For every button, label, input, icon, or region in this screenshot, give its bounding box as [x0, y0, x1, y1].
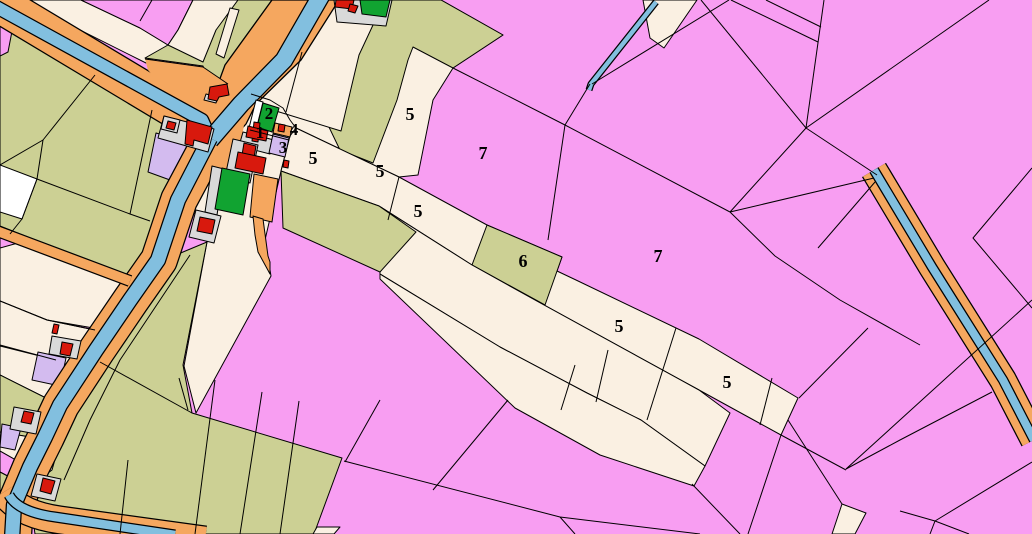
svg-text:2: 2 — [265, 104, 274, 123]
svg-text:1: 1 — [256, 123, 265, 142]
svg-text:5: 5 — [414, 201, 423, 221]
svg-text:5: 5 — [615, 316, 624, 336]
svg-text:7: 7 — [654, 246, 663, 266]
svg-text:7: 7 — [479, 143, 488, 163]
svg-text:3: 3 — [279, 138, 288, 157]
svg-text:5: 5 — [723, 372, 732, 392]
svg-text:4: 4 — [290, 120, 299, 139]
svg-text:5: 5 — [406, 104, 415, 124]
svg-text:5: 5 — [309, 148, 318, 168]
svg-text:6: 6 — [519, 251, 528, 271]
svg-text:5: 5 — [376, 161, 385, 181]
